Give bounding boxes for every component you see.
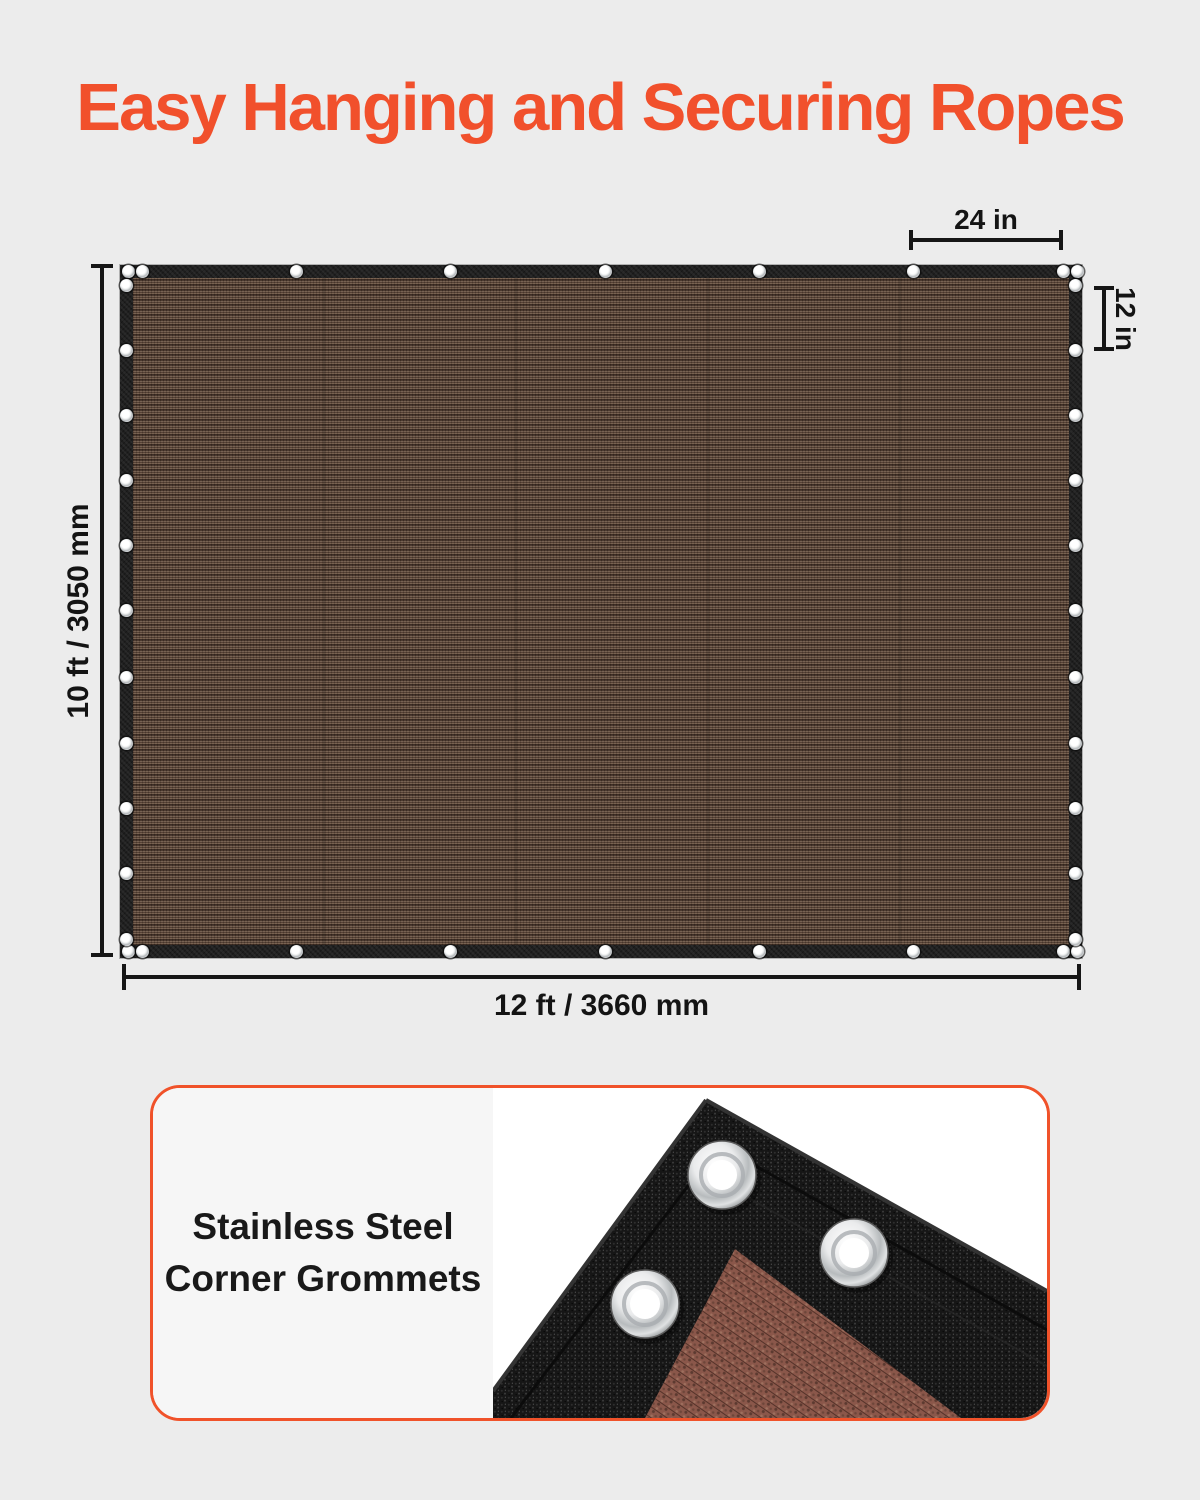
grommet-icon <box>1069 867 1082 880</box>
dimension-cap <box>91 953 113 957</box>
side-grommet-spacing-label: 12 in <box>1109 287 1141 351</box>
grommet-icon <box>290 945 303 958</box>
grommet-icon <box>444 265 457 278</box>
grommet-icon <box>1069 671 1082 684</box>
grommet-icon <box>120 539 133 552</box>
corner-grommets-photo <box>493 1088 1047 1418</box>
dimension-cap <box>122 964 126 990</box>
grommet-icon <box>120 279 133 292</box>
dimension-line <box>909 238 1063 242</box>
grommet-icon <box>120 474 133 487</box>
mesh-texture <box>133 278 1069 945</box>
height-dimension-label: 10 ft / 3050 mm <box>62 503 96 718</box>
dimension-line <box>100 264 104 957</box>
grommet-icon <box>120 933 133 946</box>
width-dimension-label: 12 ft / 3660 mm <box>494 989 709 1023</box>
grommet-icon <box>120 344 133 357</box>
grommet-icon <box>1069 737 1082 750</box>
dimension-line <box>122 975 1081 979</box>
grommet-icon <box>1071 265 1084 278</box>
grommet-icon <box>907 945 920 958</box>
grommet-icon <box>1069 933 1082 946</box>
product-infographic: Easy Hanging and Securing Ropes 10 ft / … <box>0 0 1200 1500</box>
grommet-icon <box>120 737 133 750</box>
grommet-icon <box>1069 539 1082 552</box>
corner-grommets-illustration <box>493 1088 1047 1418</box>
grommet-icon <box>120 867 133 880</box>
top-grommet-spacing-label: 24 in <box>954 204 1018 236</box>
grommet-icon <box>136 265 149 278</box>
feature-caption-line1: Stainless Steel <box>192 1201 453 1253</box>
grommet-icon <box>1069 344 1082 357</box>
grommet-icon <box>122 945 135 958</box>
dimension-cap <box>909 230 913 250</box>
grommet-icon <box>599 265 612 278</box>
grommet-icon <box>1057 945 1070 958</box>
dimension-line <box>1102 286 1106 351</box>
grommet-icon <box>136 945 149 958</box>
grommet-icon <box>120 604 133 617</box>
grommet-icon <box>1057 265 1070 278</box>
grommet-icon <box>120 671 133 684</box>
grommet-icon <box>753 265 766 278</box>
grommet-icon <box>1071 945 1084 958</box>
grommet-icon <box>1069 604 1082 617</box>
grommet-icon <box>599 945 612 958</box>
grommet-icon <box>120 409 133 422</box>
grommet-icon <box>1069 279 1082 292</box>
grommet-icon <box>1069 802 1082 815</box>
page-title: Easy Hanging and Securing Ropes <box>0 74 1200 141</box>
grommet-icon <box>122 265 135 278</box>
grommet-icon <box>907 265 920 278</box>
feature-card: Stainless Steel Corner Grommets <box>150 1085 1050 1421</box>
dimension-cap <box>1077 964 1081 990</box>
grommet-icon <box>444 945 457 958</box>
feature-caption-line2: Corner Grommets <box>165 1253 482 1305</box>
grommet-icon <box>290 265 303 278</box>
grommet-icon <box>1069 409 1082 422</box>
dimension-cap <box>91 264 113 268</box>
dimension-cap <box>1059 230 1063 250</box>
shade-cloth-fabric <box>120 265 1082 958</box>
feature-caption: Stainless Steel Corner Grommets <box>153 1088 493 1418</box>
grommet-icon <box>1069 474 1082 487</box>
grommet-icon <box>120 802 133 815</box>
grommet-icon <box>753 945 766 958</box>
